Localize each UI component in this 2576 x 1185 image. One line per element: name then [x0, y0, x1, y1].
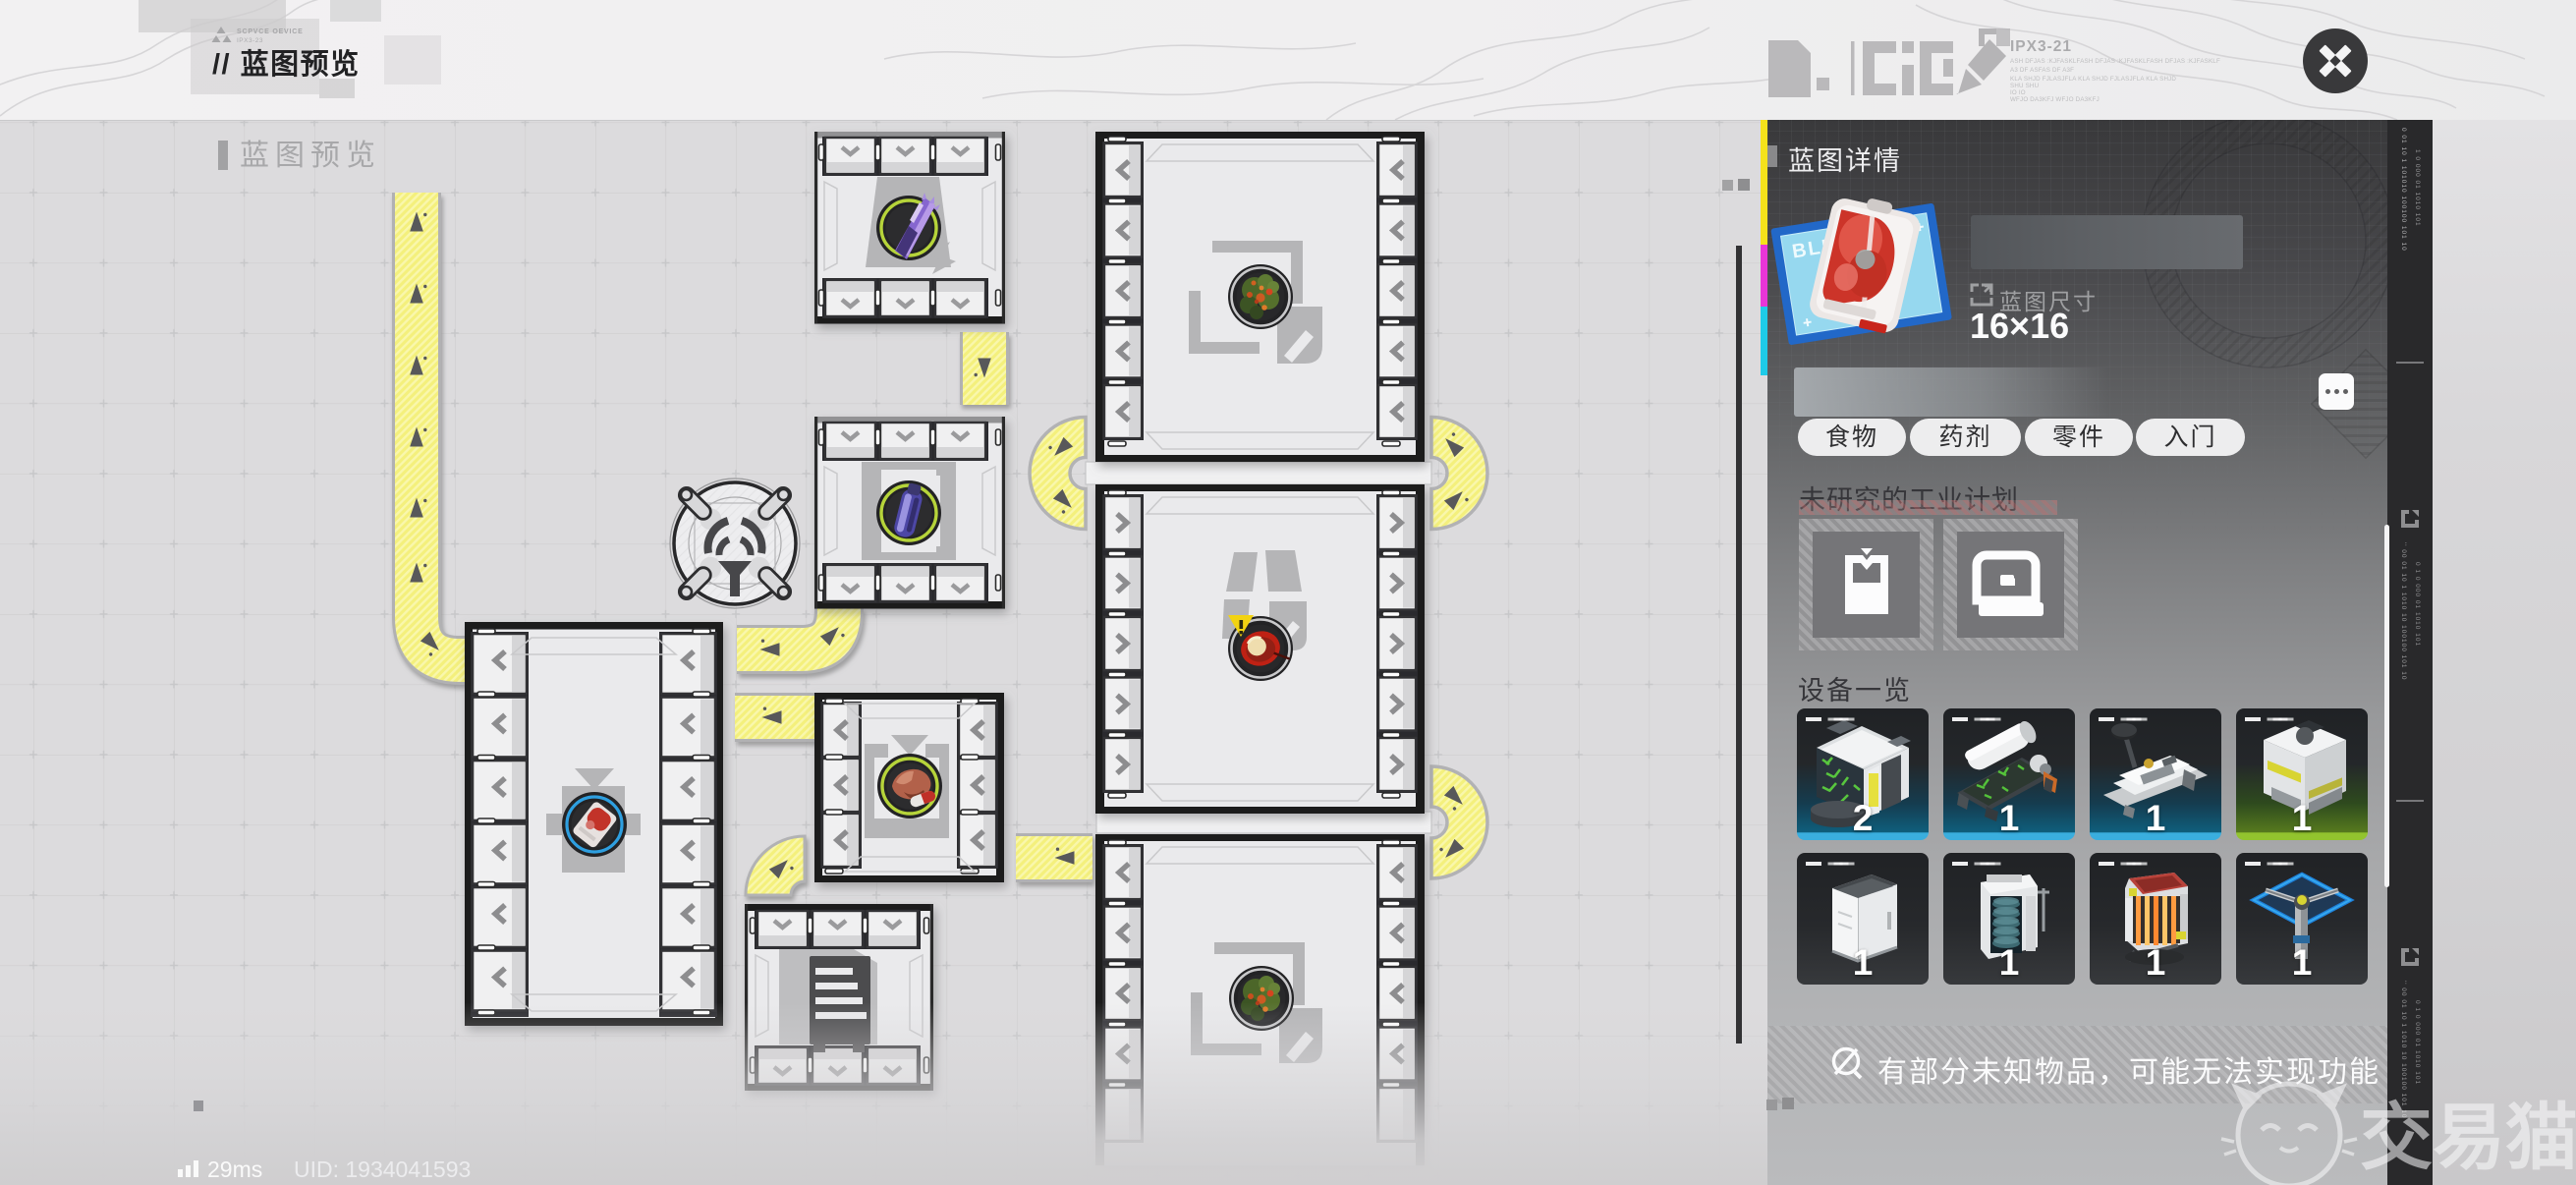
- svg-text:SCPVCE OEVICE: SCPVCE OEVICE: [237, 28, 304, 35]
- svg-text:IO IO: IO IO: [2010, 89, 2026, 96]
- svg-text:WFJO DA3KFJ WFJO DA3KFJ: WFJO DA3KFJ WFJO DA3KFJ: [2010, 96, 2100, 103]
- svg-text:交易猫: 交易猫: [2360, 1097, 2576, 1178]
- svg-text:IPX3-23: IPX3-23: [237, 37, 263, 44]
- svg-text:SHU SHU: SHU SHU: [2010, 83, 2039, 89]
- svg-text:蓝图预览: 蓝图预览: [240, 140, 381, 172]
- svg-text:UID: 1934041593: UID: 1934041593: [294, 1157, 471, 1182]
- svg-text:29ms: 29ms: [207, 1157, 262, 1182]
- svg-text:ASH DFJAS :KJFASKLFASH DFJAS :: ASH DFJAS :KJFASKLFASH DFJAS :KJFASKLFAS…: [2010, 58, 2220, 65]
- svg-text:KLA SHJD FJLASJFLA KLA SHJD F: KLA SHJD FJLASJFLA KLA SHJD FJLASJFLA KL…: [2010, 76, 2176, 83]
- svg-text:// 蓝图预览: // 蓝图预览: [212, 48, 361, 81]
- svg-text:IPX3-21: IPX3-21: [2010, 38, 2072, 55]
- svg-text:A3 DF ASFAS DF A3F: A3 DF ASFAS DF A3F: [2010, 67, 2074, 74]
